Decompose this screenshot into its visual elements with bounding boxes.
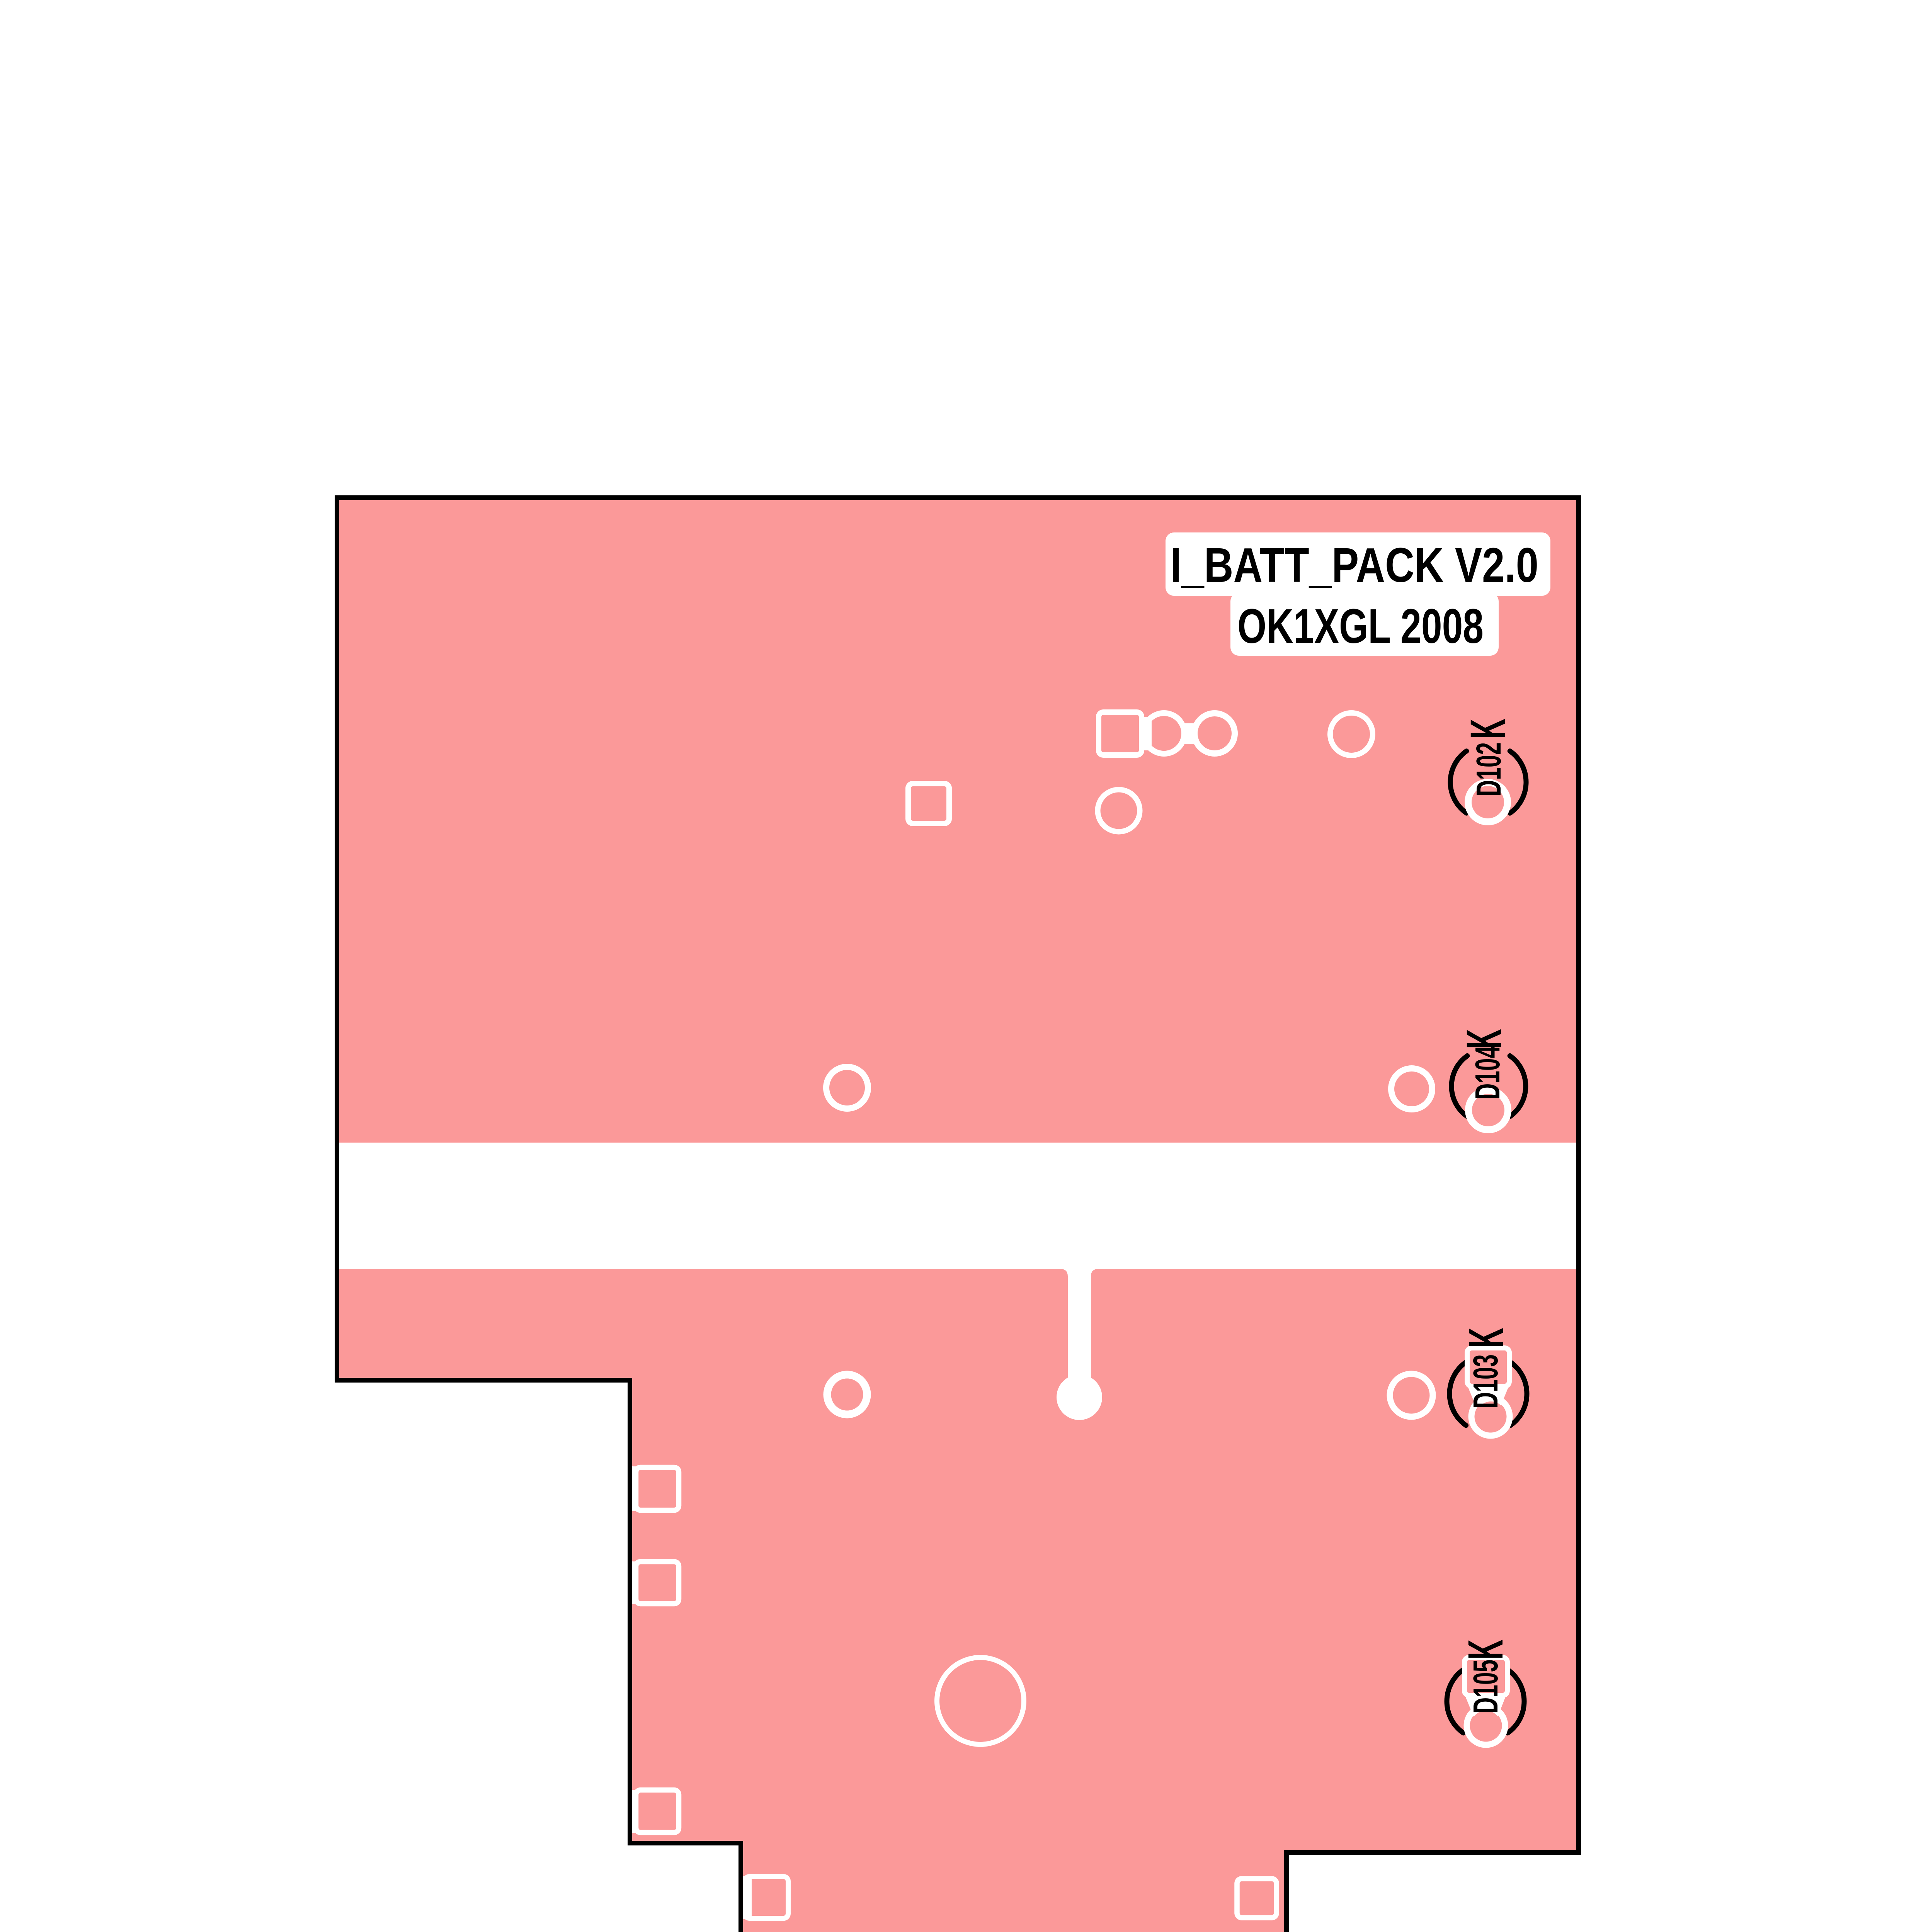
svg-text:K: K: [1460, 719, 1516, 739]
svg-text:K: K: [1457, 1029, 1512, 1049]
svg-text:K: K: [1458, 1639, 1513, 1660]
svg-text:K: K: [1459, 1328, 1514, 1348]
svg-text:I_BATT_PACK V2.0: I_BATT_PACK V2.0: [1170, 538, 1538, 592]
svg-text:D102: D102: [1470, 742, 1508, 796]
svg-text:D105: D105: [1467, 1660, 1505, 1714]
svg-text:OK1XGL 2008: OK1XGL 2008: [1237, 599, 1484, 653]
svg-text:D104: D104: [1468, 1046, 1507, 1100]
svg-text:D103: D103: [1467, 1354, 1505, 1408]
